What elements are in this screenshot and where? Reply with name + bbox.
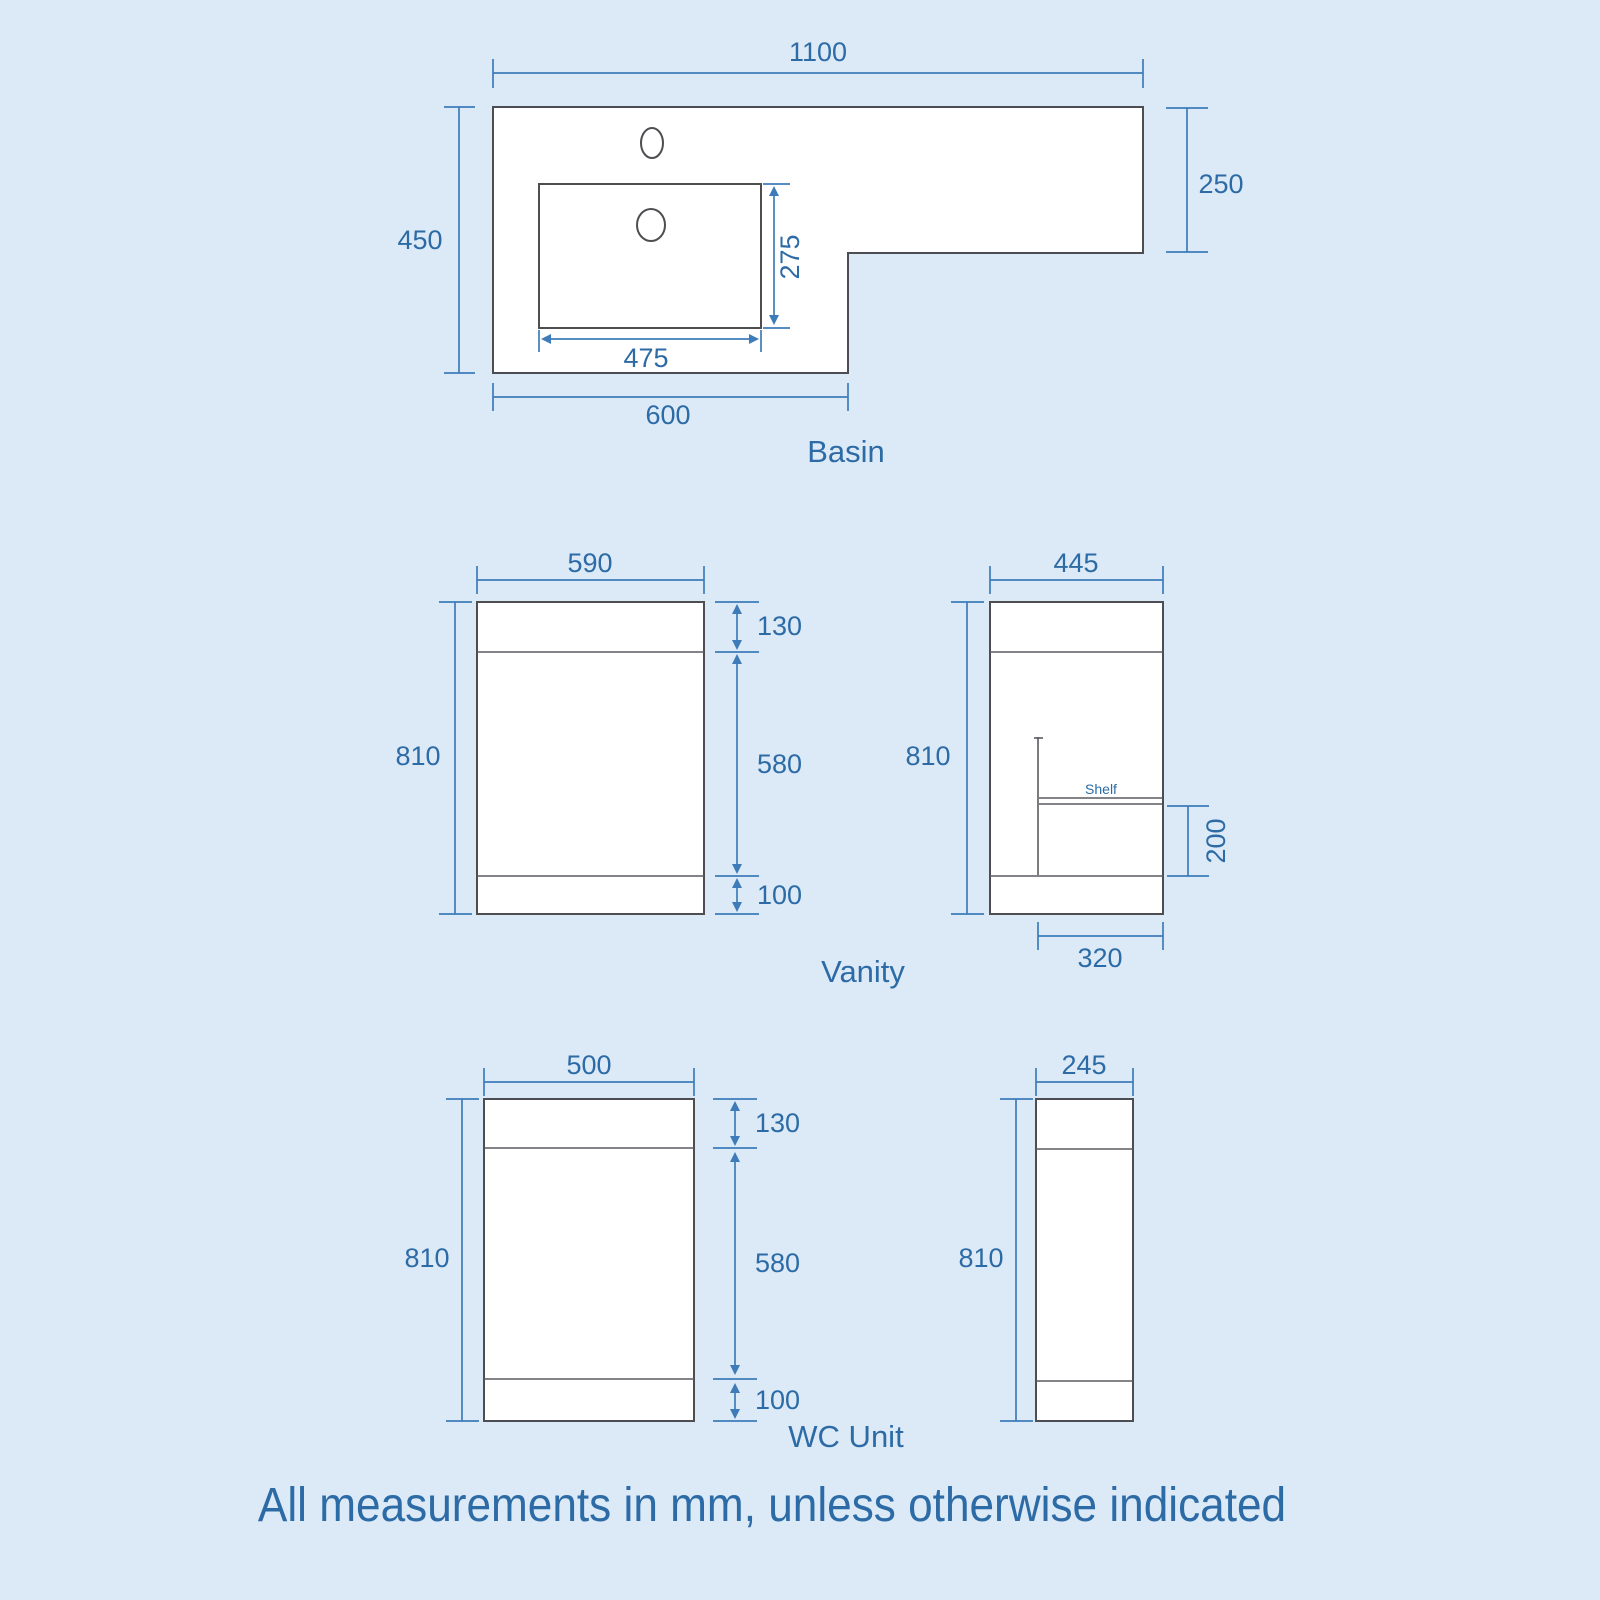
dim-wc-front-width: 500 xyxy=(484,1050,694,1096)
dim-wc-side-depth: 245 xyxy=(1036,1050,1133,1096)
basin-bowl-outline xyxy=(539,184,761,328)
dim-label: 445 xyxy=(1053,548,1098,578)
dim-label: 245 xyxy=(1061,1050,1106,1080)
arrowhead-down xyxy=(730,1409,740,1419)
dim-label: 810 xyxy=(905,741,950,771)
arrowhead-up xyxy=(730,1101,740,1111)
dim-wc-front-segments: 130 580 100 xyxy=(713,1099,800,1421)
basin-view-label: Basin xyxy=(807,434,885,469)
arrowhead-down xyxy=(732,902,742,912)
wc-side-view: 245 810 WC Unit xyxy=(788,1050,1133,1454)
dim-vanity-front-segments: 130 580 100 xyxy=(715,602,802,914)
arrowhead-up xyxy=(732,654,742,664)
vanity-view-label: Vanity xyxy=(821,954,905,989)
vanity-front-view: 590 810 130 580 100 xyxy=(395,548,802,914)
dim-basin-left-height: 450 xyxy=(397,107,475,373)
dim-label: 1100 xyxy=(789,37,847,67)
dim-vanity-front-width: 590 xyxy=(477,548,704,594)
dim-label: 475 xyxy=(623,343,668,373)
dim-label: 275 xyxy=(775,234,805,279)
dim-label: 810 xyxy=(958,1243,1003,1273)
dim-basin-top-width: 1100 xyxy=(493,37,1143,88)
tap-hole-icon xyxy=(641,128,663,158)
dim-label: 810 xyxy=(404,1243,449,1273)
dim-vanity-side-depth: 445 xyxy=(990,548,1163,594)
dim-label: 100 xyxy=(755,1385,800,1415)
dim-label: 130 xyxy=(757,611,802,641)
dim-basin-right-height: 250 xyxy=(1166,108,1244,252)
dim-label: 590 xyxy=(567,548,612,578)
dim-label: 580 xyxy=(755,1248,800,1278)
wc-front-view: 500 810 130 580 100 xyxy=(404,1050,800,1421)
arrowhead-down xyxy=(730,1365,740,1375)
vanity-side-view: Shelf 445 810 200 320 Vanity xyxy=(821,548,1231,989)
vanity-front-outline xyxy=(477,602,704,914)
dim-label: 580 xyxy=(757,749,802,779)
arrowhead-down xyxy=(732,640,742,650)
dimension-diagram: 1100 450 250 275 475 xyxy=(0,0,1600,1600)
measurements-note: All measurements in mm, unless otherwise… xyxy=(258,1477,1286,1531)
dim-label: 200 xyxy=(1201,818,1231,863)
waste-hole-icon xyxy=(637,209,665,241)
dim-vanity-side-height: 810 xyxy=(905,602,984,914)
arrowhead-up xyxy=(732,604,742,614)
dim-label: 320 xyxy=(1077,943,1122,973)
arrowhead-down xyxy=(732,864,742,874)
dim-label: 810 xyxy=(395,741,440,771)
dim-label: 250 xyxy=(1198,169,1243,199)
dim-wc-side-height: 810 xyxy=(958,1099,1033,1421)
arrowhead-up xyxy=(732,878,742,888)
dim-label: 450 xyxy=(397,225,442,255)
dim-vanity-front-height: 810 xyxy=(395,602,472,914)
arrowhead-down xyxy=(730,1136,740,1146)
basin-view: 1100 450 250 275 475 xyxy=(397,37,1243,469)
dim-vanity-shelf-depth: 320 xyxy=(1038,922,1163,973)
wc-view-label: WC Unit xyxy=(788,1419,904,1454)
shelf-label: Shelf xyxy=(1085,781,1117,797)
dim-wc-front-height: 810 xyxy=(404,1099,479,1421)
arrowhead-up xyxy=(730,1383,740,1393)
wc-side-outline xyxy=(1036,1099,1133,1421)
dim-basin-left-width: 600 xyxy=(493,383,848,430)
dim-label: 600 xyxy=(645,400,690,430)
arrowhead-up xyxy=(730,1152,740,1162)
dim-label: 130 xyxy=(755,1108,800,1138)
vanity-side-outline xyxy=(990,602,1163,914)
technical-drawing-page: 1100 450 250 275 475 xyxy=(0,0,1600,1600)
dim-label: 100 xyxy=(757,880,802,910)
dim-vanity-shelf-height: 200 xyxy=(1167,806,1231,876)
dim-label: 500 xyxy=(566,1050,611,1080)
